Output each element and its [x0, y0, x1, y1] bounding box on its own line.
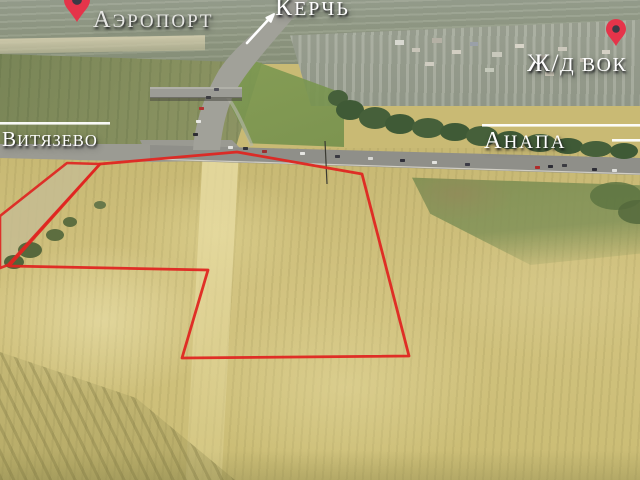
- house-roof: [492, 52, 502, 57]
- house-roof: [425, 62, 434, 66]
- car: [262, 150, 267, 153]
- house-roof: [452, 50, 461, 54]
- railway-station-label: Ж/Д Вок: [527, 50, 627, 77]
- tree: [385, 114, 415, 134]
- house-roof: [412, 48, 420, 52]
- car: [335, 155, 340, 158]
- car: [196, 120, 201, 123]
- tree: [412, 118, 444, 138]
- pin-dot: [612, 25, 620, 33]
- car: [562, 164, 567, 167]
- car: [535, 166, 540, 169]
- house-roof: [432, 38, 442, 43]
- railway-pin-icon: [606, 19, 626, 46]
- bush: [63, 217, 77, 227]
- car: [400, 159, 405, 162]
- vityazevo-divider-line: [0, 122, 110, 125]
- car: [432, 161, 437, 164]
- car: [612, 169, 617, 172]
- bush: [94, 201, 106, 209]
- vityazevo-label: Витязево: [2, 128, 98, 150]
- car: [368, 157, 373, 160]
- house-roof: [515, 44, 524, 48]
- anapa-label: Анапа: [484, 128, 566, 154]
- car: [548, 165, 553, 168]
- car: [228, 146, 233, 149]
- house-roof: [470, 42, 478, 46]
- overpass-bridge: [150, 87, 242, 98]
- aerial-photo: Аэропорт Керчь Ж/Д Вок Витязево Анапа: [0, 0, 640, 480]
- house-roof: [485, 68, 494, 72]
- tree: [610, 143, 638, 159]
- airport-pin-icon: [64, 0, 90, 22]
- car: [193, 133, 198, 136]
- car: [206, 96, 211, 99]
- airport-label: Аэропорт: [93, 7, 213, 33]
- car: [465, 163, 470, 166]
- car: [300, 152, 305, 155]
- anapa-divider-line: [482, 124, 640, 127]
- car: [243, 147, 248, 150]
- overpass-shadow: [150, 97, 242, 101]
- car: [592, 168, 597, 171]
- tree: [440, 123, 470, 141]
- car: [214, 88, 219, 91]
- house-roof: [395, 40, 404, 45]
- kerch-label: Керчь: [275, 0, 350, 21]
- bush: [46, 229, 64, 241]
- anapa-right-line: [612, 139, 640, 142]
- tree: [580, 141, 612, 157]
- car: [199, 107, 204, 110]
